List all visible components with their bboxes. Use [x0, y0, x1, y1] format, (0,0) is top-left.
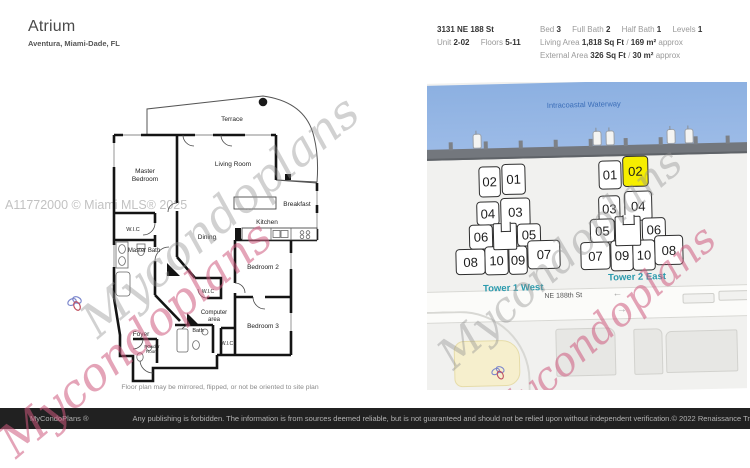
- unit-box-t1-02: 02: [478, 166, 501, 198]
- dock-post: [484, 141, 488, 149]
- dock-post: [519, 141, 523, 149]
- label-bedroom3: Bedroom 3: [247, 323, 279, 330]
- label-breakfast: Breakfast: [283, 201, 311, 208]
- dock-post: [449, 142, 453, 150]
- dock-post: [659, 137, 663, 145]
- floors-label: Floors: [481, 38, 503, 47]
- page-subtitle: Aventura, Miami-Dade, FL: [28, 39, 120, 48]
- street-arrow-left: ←: [612, 288, 622, 299]
- building-shape-2: [633, 328, 663, 375]
- external-area-metric: 30 m²: [633, 51, 654, 60]
- label-master-bedroom-1: Master: [135, 168, 156, 175]
- tower-core-t2: [615, 216, 642, 247]
- bed-value: 3: [556, 25, 560, 34]
- label-terrace: Terrace: [221, 116, 243, 123]
- unit-box-t2-05: 05: [590, 218, 616, 243]
- building-shape-3: [665, 329, 738, 373]
- tower-label-t1: Tower 1 West: [483, 282, 544, 294]
- floorplan-caption: Floor plan may be mirrored, flipped, or …: [121, 384, 318, 391]
- external-area-approx: approx: [656, 51, 680, 60]
- dock-post: [554, 140, 558, 148]
- site-map: Intracoastal Waterway NE 188th St ← → 02…: [427, 82, 747, 390]
- external-area-value: 326 Sq Ft: [590, 51, 626, 60]
- full-bath-label: Full Bath: [572, 25, 604, 34]
- label-living-room: Living Room: [215, 161, 251, 168]
- title-block: Atrium Aventura, Miami-Dade, FL: [28, 18, 120, 48]
- tower-label-t2: Tower 2 East: [608, 271, 666, 283]
- label-foyer: Foyer: [133, 331, 150, 338]
- dock-post: [624, 138, 628, 146]
- unit-label: Unit: [437, 38, 451, 47]
- unit-box-t1-07: 07: [527, 240, 561, 270]
- condo-plan-sheet: { "header": { "title": "Atrium", "subtit…: [0, 0, 750, 432]
- unit-box-t1-10: 10: [484, 246, 509, 276]
- label-wic-center: W.I.C: [202, 289, 215, 295]
- living-area-metric: 169 m²: [631, 38, 656, 47]
- bed-label: Bed: [540, 25, 554, 34]
- unit-box-t1-01: 01: [501, 163, 526, 195]
- unit-box-t2-07: 07: [580, 241, 611, 270]
- boat-icon: [666, 129, 675, 144]
- page-title: Atrium: [28, 18, 120, 36]
- label-master-bath: Master Bath: [128, 248, 160, 254]
- boat-icon: [684, 128, 693, 143]
- label-bedroom2: Bedroom 2: [247, 264, 279, 271]
- footer-brand: MyCondoPlans ®: [30, 414, 88, 423]
- map-flower-logo: [488, 364, 510, 385]
- street-arrow-right: →: [617, 304, 627, 315]
- living-area-label: Living Area: [540, 38, 580, 47]
- label-computer-1: Computer: [201, 310, 227, 316]
- label-dining: Dining: [198, 234, 217, 241]
- floor-plan-drawing: Terrace Master Bedroom Living Room Break…: [95, 85, 345, 395]
- label-wic-master: W.I.C: [126, 227, 139, 233]
- living-area-approx: approx: [658, 38, 682, 47]
- address-text: 3131 NE 188 St: [437, 25, 494, 34]
- flower-logo: [64, 294, 88, 316]
- tower-core-t1: [493, 223, 518, 251]
- unit-value: 2-02: [453, 38, 469, 47]
- footer-bar: MyCondoPlans ® Any publishing is forbidd…: [0, 408, 750, 429]
- floors-value: 5-11: [505, 38, 521, 47]
- site-map-inner: Intracoastal Waterway NE 188th St ← → 02…: [427, 82, 747, 390]
- label-wic-bottom: W.I.C: [221, 341, 234, 347]
- label-kitchen: Kitchen: [256, 219, 278, 226]
- full-bath-value: 2: [606, 25, 610, 34]
- median-island: [682, 293, 714, 304]
- stats-block: Bed 3 Full Bath 2 Half Bath 1 Levels 1 L…: [540, 24, 702, 63]
- external-area-label: External Area: [540, 51, 588, 60]
- footer-disclaimer: Any publishing is forbidden. The informa…: [132, 414, 671, 423]
- building-shape-1: [555, 327, 616, 376]
- terrace-column-dot: [259, 98, 268, 107]
- waterway-label: Intracoastal Waterway: [427, 96, 747, 113]
- dock-post: [726, 135, 730, 143]
- living-area-sep: /: [626, 38, 628, 47]
- street-label: NE 188th St: [544, 292, 582, 300]
- boat-icon: [605, 130, 614, 145]
- living-area-value: 1,818 Sq Ft: [582, 38, 624, 47]
- terrace-outline: [147, 96, 318, 183]
- label-bath: Bath: [192, 328, 203, 334]
- label-powder-2: Room: [146, 349, 158, 354]
- unit-box-t1-04: 04: [476, 201, 500, 226]
- unit-box-t2-08: 08: [654, 235, 684, 266]
- half-bath-value: 1: [657, 25, 661, 34]
- boat-icon: [592, 131, 601, 146]
- address-block: 3131 NE 188 St Unit 2-02 Floors 5-11: [437, 24, 521, 50]
- levels-label: Levels: [672, 25, 695, 34]
- label-computer-2: area: [208, 317, 221, 323]
- unit-box-t2-01: 01: [598, 160, 622, 190]
- unit-box-t1-08: 08: [455, 248, 486, 275]
- boat-icon: [472, 134, 481, 149]
- external-area-sep: /: [628, 51, 630, 60]
- unit-box-t1-09: 09: [508, 245, 528, 274]
- landscape-area: [454, 340, 521, 388]
- levels-value: 1: [698, 25, 702, 34]
- footer-copyright: © 2022 Renaissance Trading Corp All Righ…: [671, 414, 750, 423]
- dock-post: [694, 136, 698, 144]
- label-master-bedroom-2: Bedroom: [132, 176, 158, 183]
- half-bath-label: Half Bath: [622, 25, 655, 34]
- unit-box-t2-02: 02: [622, 155, 649, 187]
- median-island-2: [718, 290, 747, 301]
